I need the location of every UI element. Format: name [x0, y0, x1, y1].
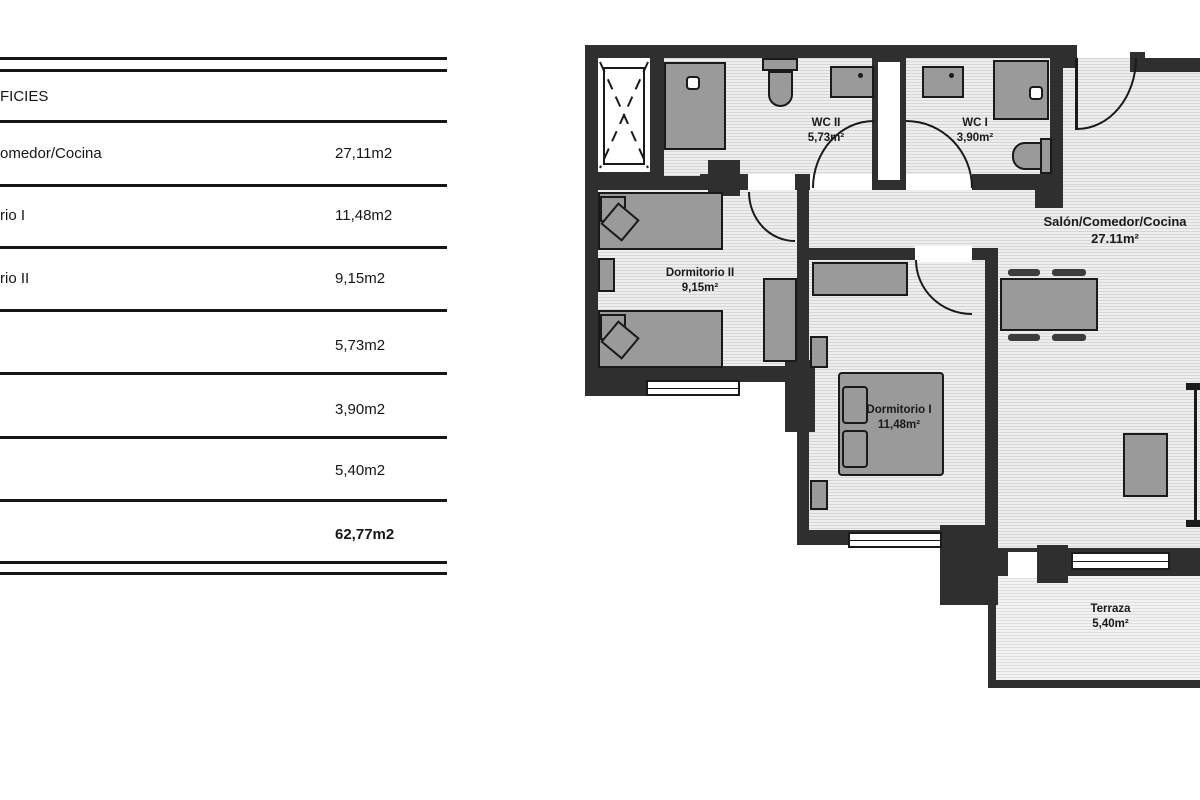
window [848, 532, 942, 548]
dining-table [1000, 278, 1098, 331]
balcony-door-leaf [1194, 390, 1197, 522]
shower-tray [664, 62, 726, 150]
faucet-dot [949, 73, 954, 78]
toilet-bowl [768, 71, 793, 107]
elevator-cross-icon [598, 58, 650, 172]
room-name: Salón/Comedor/Cocina [1030, 213, 1200, 230]
page: FICIES omedor/Cocina 27,11m2 rio I 11,48… [0, 0, 1200, 800]
toilet-bowl [1012, 142, 1042, 170]
sink [922, 66, 964, 98]
room-area: 27.11m² [1030, 230, 1200, 247]
room-label-wc1: WC I 3,90m² [925, 116, 1025, 146]
door-opening [1008, 552, 1037, 578]
terrace-wall [988, 576, 996, 688]
room-name: WC II [776, 116, 876, 131]
chair [1008, 334, 1040, 341]
window [646, 380, 740, 396]
room-name: Dormitorio II [645, 266, 755, 281]
shower-drain [1029, 86, 1043, 100]
wall [650, 58, 664, 190]
sofa [1123, 433, 1168, 497]
sink [830, 66, 874, 98]
vent-shaft-interior [878, 62, 900, 180]
nightstand [810, 480, 828, 510]
wall [585, 45, 1077, 58]
nightstand [810, 336, 828, 368]
room-name: Terraza [1058, 602, 1163, 617]
floor-dorm1 [808, 186, 985, 532]
wall [585, 45, 598, 382]
room-label-wc2: WC II 5,73m² [776, 116, 876, 146]
floor-plan: WC II 5,73m² WC I 3,90m² Salón/Comedor/C… [0, 0, 1200, 800]
room-area: 3,90m² [925, 131, 1025, 146]
wall [809, 248, 915, 260]
wall [985, 248, 998, 556]
wall [1035, 176, 1063, 208]
nightstand [598, 258, 615, 292]
wardrobe [812, 262, 908, 296]
room-label-terraza: Terraza 5,40m² [1058, 602, 1163, 632]
room-area: 5,73m² [776, 131, 876, 146]
chair [1052, 334, 1086, 341]
room-label-dorm1: Dormitorio I 11,48m² [843, 403, 955, 433]
wall [585, 366, 650, 396]
shower-tray [993, 60, 1049, 120]
faucet-dot [858, 73, 863, 78]
chair [1008, 269, 1040, 276]
pillow [842, 430, 868, 468]
window [1071, 552, 1170, 570]
terrace-wall [988, 680, 1200, 688]
chair [1052, 269, 1086, 276]
room-name: Dormitorio I [843, 403, 955, 418]
room-area: 5,40m² [1058, 617, 1163, 632]
door-opening [748, 174, 795, 190]
wardrobe [763, 278, 797, 362]
balcony-door-jamb [1186, 383, 1200, 390]
room-area: 9,15m² [645, 281, 755, 296]
wall [1135, 58, 1200, 72]
room-area: 11,48m² [843, 418, 955, 433]
shower-drain [686, 76, 700, 90]
room-name: WC I [925, 116, 1025, 131]
elevator-shaft [598, 58, 650, 172]
room-label-salon: Salón/Comedor/Cocina 27.11m² [1030, 213, 1200, 247]
toilet-tank [762, 58, 798, 71]
wall [1037, 545, 1068, 583]
entry-door-leaf [1075, 58, 1078, 130]
room-label-dorm2: Dormitorio II 9,15m² [645, 266, 755, 296]
balcony-door-jamb [1186, 520, 1200, 527]
wall [708, 160, 740, 196]
